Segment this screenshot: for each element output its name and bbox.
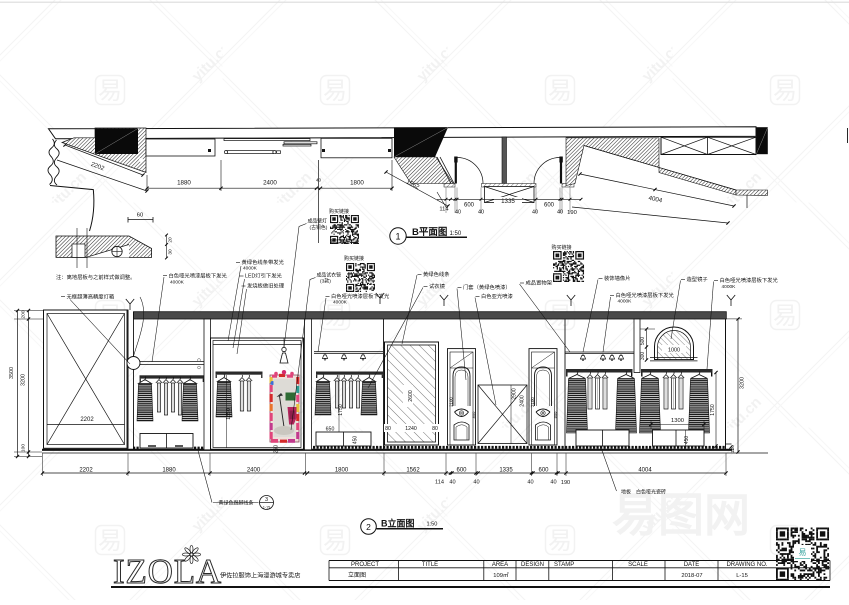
svg-text:1335: 1335 xyxy=(499,467,513,473)
svg-text:1:50: 1:50 xyxy=(450,231,462,237)
svg-text:4000K: 4000K xyxy=(243,266,258,272)
svg-text:800: 800 xyxy=(553,411,558,418)
svg-text:B平面图: B平面图 xyxy=(412,227,447,238)
svg-text:1240: 1240 xyxy=(405,426,417,432)
svg-text:2: 2 xyxy=(366,522,371,532)
svg-text:2400: 2400 xyxy=(520,395,526,407)
svg-text:LED灯引下发光: LED灯引下发光 xyxy=(245,272,282,280)
svg-text:40: 40 xyxy=(532,210,538,216)
svg-text:购买链接: 购买链接 xyxy=(344,255,364,262)
svg-text:DRAWING NO.: DRAWING NO. xyxy=(726,562,767,568)
svg-text:450: 450 xyxy=(684,436,690,445)
svg-text:门套（黄绿色喷漆）: 门套（黄绿色喷漆） xyxy=(463,283,511,291)
svg-text:450: 450 xyxy=(353,436,359,445)
svg-text:600: 600 xyxy=(544,203,555,209)
svg-text:TITLE: TITLE xyxy=(422,562,438,568)
svg-text:260: 260 xyxy=(274,445,280,454)
svg-text:PROJECT: PROJECT xyxy=(351,562,379,568)
svg-text:装饰墙像片: 装饰墙像片 xyxy=(604,274,631,282)
svg-text:1800: 1800 xyxy=(335,467,349,473)
svg-text:试衣镜: 试衣镜 xyxy=(429,282,446,290)
svg-text:2202: 2202 xyxy=(80,417,94,423)
svg-text:1: 1 xyxy=(395,232,400,242)
svg-text:购买链接: 购买链接 xyxy=(330,239,350,246)
svg-text:4000K: 4000K xyxy=(722,284,737,290)
svg-text:白色哑光喷漆层板下发光: 白色哑光喷漆层板下发光 xyxy=(720,276,779,284)
svg-text:白色亚光喷漆: 白色亚光喷漆 xyxy=(481,292,513,300)
svg-text:(古铜色): (古铜色) xyxy=(310,224,328,231)
svg-text:造型镜子: 造型镜子 xyxy=(687,275,709,283)
svg-text:发烧板做旧处理: 发烧板做旧处理 xyxy=(247,282,285,290)
svg-text:650: 650 xyxy=(326,427,335,433)
svg-text:伊佐拉服饰上海漫游城专卖店: 伊佐拉服饰上海漫游城专卖店 xyxy=(220,572,300,580)
svg-text:114: 114 xyxy=(439,207,449,213)
svg-text:2400: 2400 xyxy=(247,467,261,473)
svg-text:3500: 3500 xyxy=(9,367,15,379)
svg-text:40: 40 xyxy=(449,480,455,486)
svg-text:3200: 3200 xyxy=(740,377,746,389)
svg-text:立面图: 立面图 xyxy=(348,571,366,579)
svg-text:1800: 1800 xyxy=(350,180,364,187)
svg-text:注：离地层板与之前样式做调整。: 注：离地层板与之前样式做调整。 xyxy=(56,273,135,281)
svg-text:2600: 2600 xyxy=(408,390,414,402)
svg-text:40: 40 xyxy=(557,210,563,216)
svg-text:1880: 1880 xyxy=(177,180,191,187)
svg-text:AREA: AREA xyxy=(492,562,508,568)
svg-text:L-15: L-15 xyxy=(736,573,748,579)
svg-text:40: 40 xyxy=(316,178,322,183)
svg-text:1850: 1850 xyxy=(226,408,232,420)
svg-text:40: 40 xyxy=(478,210,484,216)
svg-text:黄绿色踢脚线条: 黄绿色踢脚线条 xyxy=(219,500,254,507)
svg-text:100: 100 xyxy=(21,444,27,452)
svg-text:B立面图: B立面图 xyxy=(381,518,415,529)
svg-text:4004: 4004 xyxy=(638,467,652,473)
svg-text:600: 600 xyxy=(464,203,475,209)
svg-text:30: 30 xyxy=(168,249,174,255)
svg-text:190: 190 xyxy=(567,210,577,216)
svg-text:20: 20 xyxy=(168,237,174,243)
svg-text:40: 40 xyxy=(473,480,479,486)
svg-text:1750: 1750 xyxy=(710,404,716,416)
svg-text:无框超薄高精度灯箱: 无框超薄高精度灯箱 xyxy=(67,293,115,301)
svg-text:40: 40 xyxy=(527,480,533,486)
svg-text:1:50: 1:50 xyxy=(427,522,438,528)
svg-text:1562: 1562 xyxy=(406,467,420,473)
svg-text:1300: 1300 xyxy=(671,418,684,424)
svg-text:IZOLA: IZOLA xyxy=(113,552,222,591)
svg-text:DESIGN: DESIGN xyxy=(521,562,544,568)
svg-text:购买链接: 购买链接 xyxy=(552,244,572,251)
svg-text:易: 易 xyxy=(799,548,807,557)
svg-text:SCALE: SCALE xyxy=(628,562,648,568)
svg-text:DATE: DATE xyxy=(684,562,700,568)
svg-text:1000: 1000 xyxy=(668,348,680,354)
svg-text:80: 80 xyxy=(385,426,391,432)
svg-text:80: 80 xyxy=(432,426,438,432)
svg-text:黄绿色线条带发光: 黄绿色线条带发光 xyxy=(242,258,285,266)
svg-text:800: 800 xyxy=(471,411,476,418)
svg-text:白色哑光喷漆层板下发光: 白色哑光喷漆层板下发光 xyxy=(616,291,675,299)
svg-text:300: 300 xyxy=(640,352,646,361)
svg-text:190: 190 xyxy=(561,480,570,486)
svg-text:(3款): (3款) xyxy=(320,278,331,285)
svg-text:2900: 2900 xyxy=(512,388,518,400)
svg-text:2100: 2100 xyxy=(530,397,535,407)
svg-text:200: 200 xyxy=(21,310,27,318)
svg-text:2018-07: 2018-07 xyxy=(681,573,702,579)
svg-text:3200: 3200 xyxy=(21,374,27,386)
svg-text:地板 白色哑光瓷砖: 地板 白色哑光瓷砖 xyxy=(621,489,666,496)
svg-text:4000K: 4000K xyxy=(618,299,633,305)
svg-text:114: 114 xyxy=(435,480,444,486)
svg-text:4000K: 4000K xyxy=(333,300,348,306)
svg-text:STAMP: STAMP xyxy=(554,562,574,568)
svg-text:成品置物架: 成品置物架 xyxy=(526,279,553,287)
svg-text:600: 600 xyxy=(456,467,467,473)
svg-text:易图网: 易图网 xyxy=(612,489,750,541)
svg-text:109㎡: 109㎡ xyxy=(493,571,509,579)
svg-text:2202: 2202 xyxy=(79,467,93,473)
svg-text:黄绿色线条: 黄绿色线条 xyxy=(423,270,450,278)
svg-text:4000K: 4000K xyxy=(170,280,185,286)
svg-text:成品壁灯: 成品壁灯 xyxy=(308,218,328,225)
svg-text:1880: 1880 xyxy=(162,467,176,473)
svg-text:白色哑光喷漆层板下发光: 白色哑光喷漆层板下发光 xyxy=(331,292,390,300)
svg-text:2100: 2100 xyxy=(449,397,454,407)
svg-text:3: 3 xyxy=(265,497,268,503)
svg-text:60: 60 xyxy=(137,213,143,219)
svg-text:白色哑光喷漆层板下发光: 白色哑光喷漆层板下发光 xyxy=(169,272,228,280)
svg-text:500: 500 xyxy=(640,337,646,346)
svg-text:40: 40 xyxy=(455,210,461,216)
svg-text:600: 600 xyxy=(538,467,549,473)
svg-text:2400: 2400 xyxy=(263,180,277,187)
svg-text:购买链接: 购买链接 xyxy=(329,208,349,215)
svg-text:成品试衣镜: 成品试衣镜 xyxy=(317,272,342,279)
svg-text:40: 40 xyxy=(550,480,556,486)
svg-text:1-15: 1-15 xyxy=(263,506,270,510)
